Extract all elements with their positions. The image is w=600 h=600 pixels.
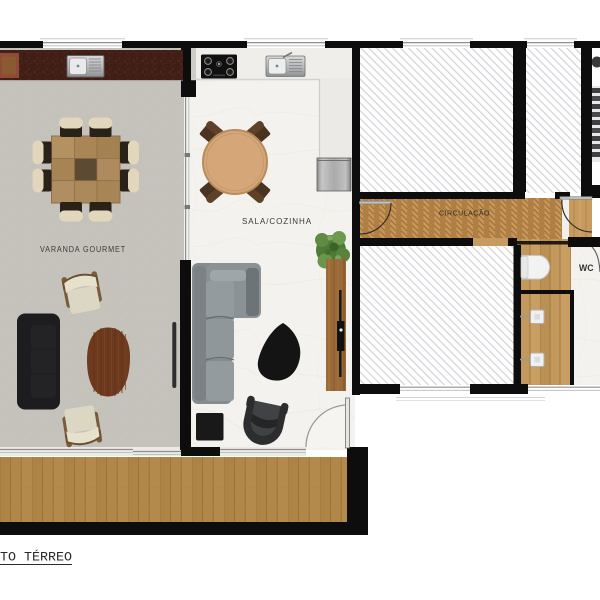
svg-text:WC: WC (579, 263, 594, 273)
svg-text:CIRCULAÇÃO: CIRCULAÇÃO (439, 209, 490, 218)
svg-text:VARANDA GOURMET: VARANDA GOURMET (40, 244, 126, 254)
svg-text:SALA/COZINHA: SALA/COZINHA (242, 216, 312, 226)
svg-text:NTO TÉRREO: NTO TÉRREO (0, 550, 72, 565)
